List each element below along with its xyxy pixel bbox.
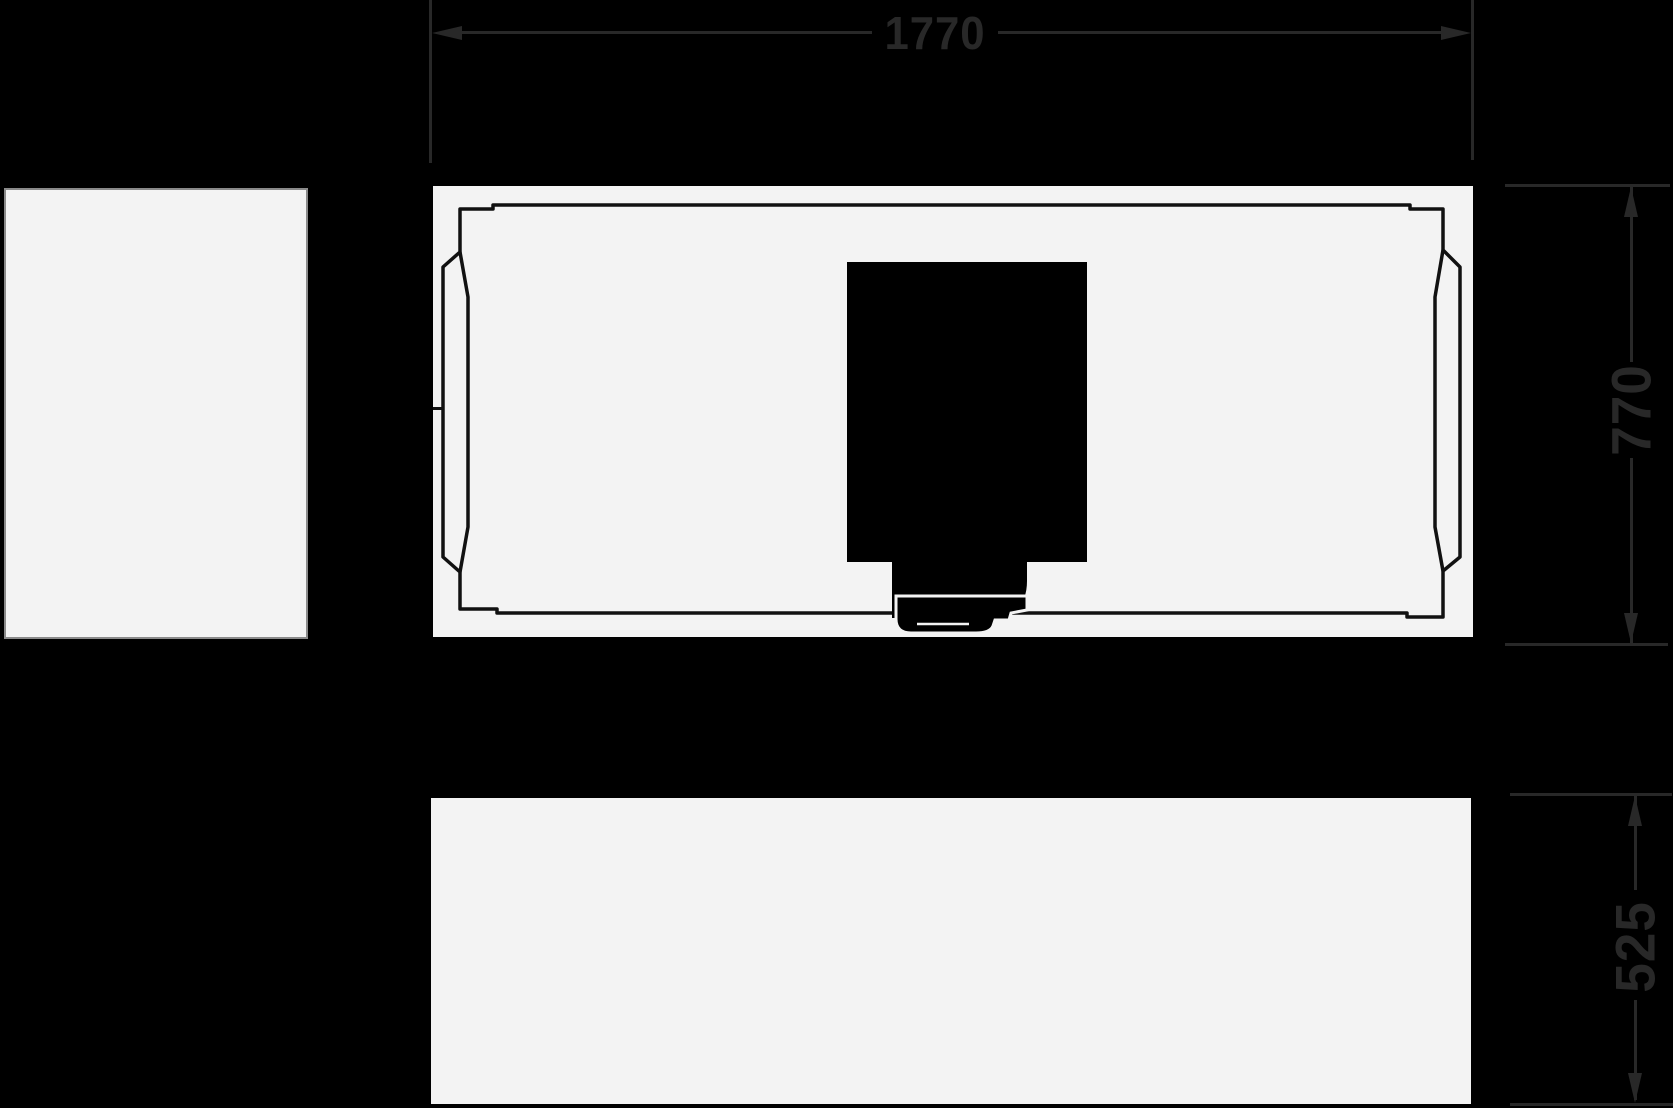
plan-view (433, 186, 1473, 637)
technical-drawing-canvas: 1770 770 525 (0, 0, 1673, 1108)
front-elevation-view (431, 798, 1471, 1104)
width-extension-line-right (1471, 0, 1474, 160)
depth-tick-top (1505, 184, 1670, 187)
plan-view-drawing (433, 186, 1473, 637)
depth-arrow-up-icon (1624, 187, 1638, 217)
depth-tick-bottom (1505, 643, 1668, 646)
width-dim-line-right (998, 31, 1448, 34)
width-arrow-right-icon (1441, 26, 1471, 40)
width-dim-line-left (455, 31, 872, 34)
centerline-tick (433, 407, 442, 410)
overflow-tongue (896, 596, 1027, 633)
backrest-slope-left (460, 252, 468, 572)
depth-dim-label: 770 (1599, 364, 1664, 456)
height-tick-top (1510, 793, 1672, 796)
depth-arrow-down-icon (1624, 613, 1638, 643)
height-tick-bottom (1510, 1103, 1673, 1106)
backrest-slope-right (1435, 250, 1443, 571)
height-dim-label: 525 (1603, 901, 1668, 993)
width-arrow-left-icon (432, 26, 462, 40)
side-elevation-view (4, 188, 308, 639)
installation-block (847, 262, 1087, 562)
height-arrow-up-icon (1628, 796, 1642, 826)
height-arrow-down-icon (1628, 1073, 1642, 1103)
width-extension-line-left (429, 0, 432, 163)
width-dim-label: 1770 (884, 6, 985, 60)
